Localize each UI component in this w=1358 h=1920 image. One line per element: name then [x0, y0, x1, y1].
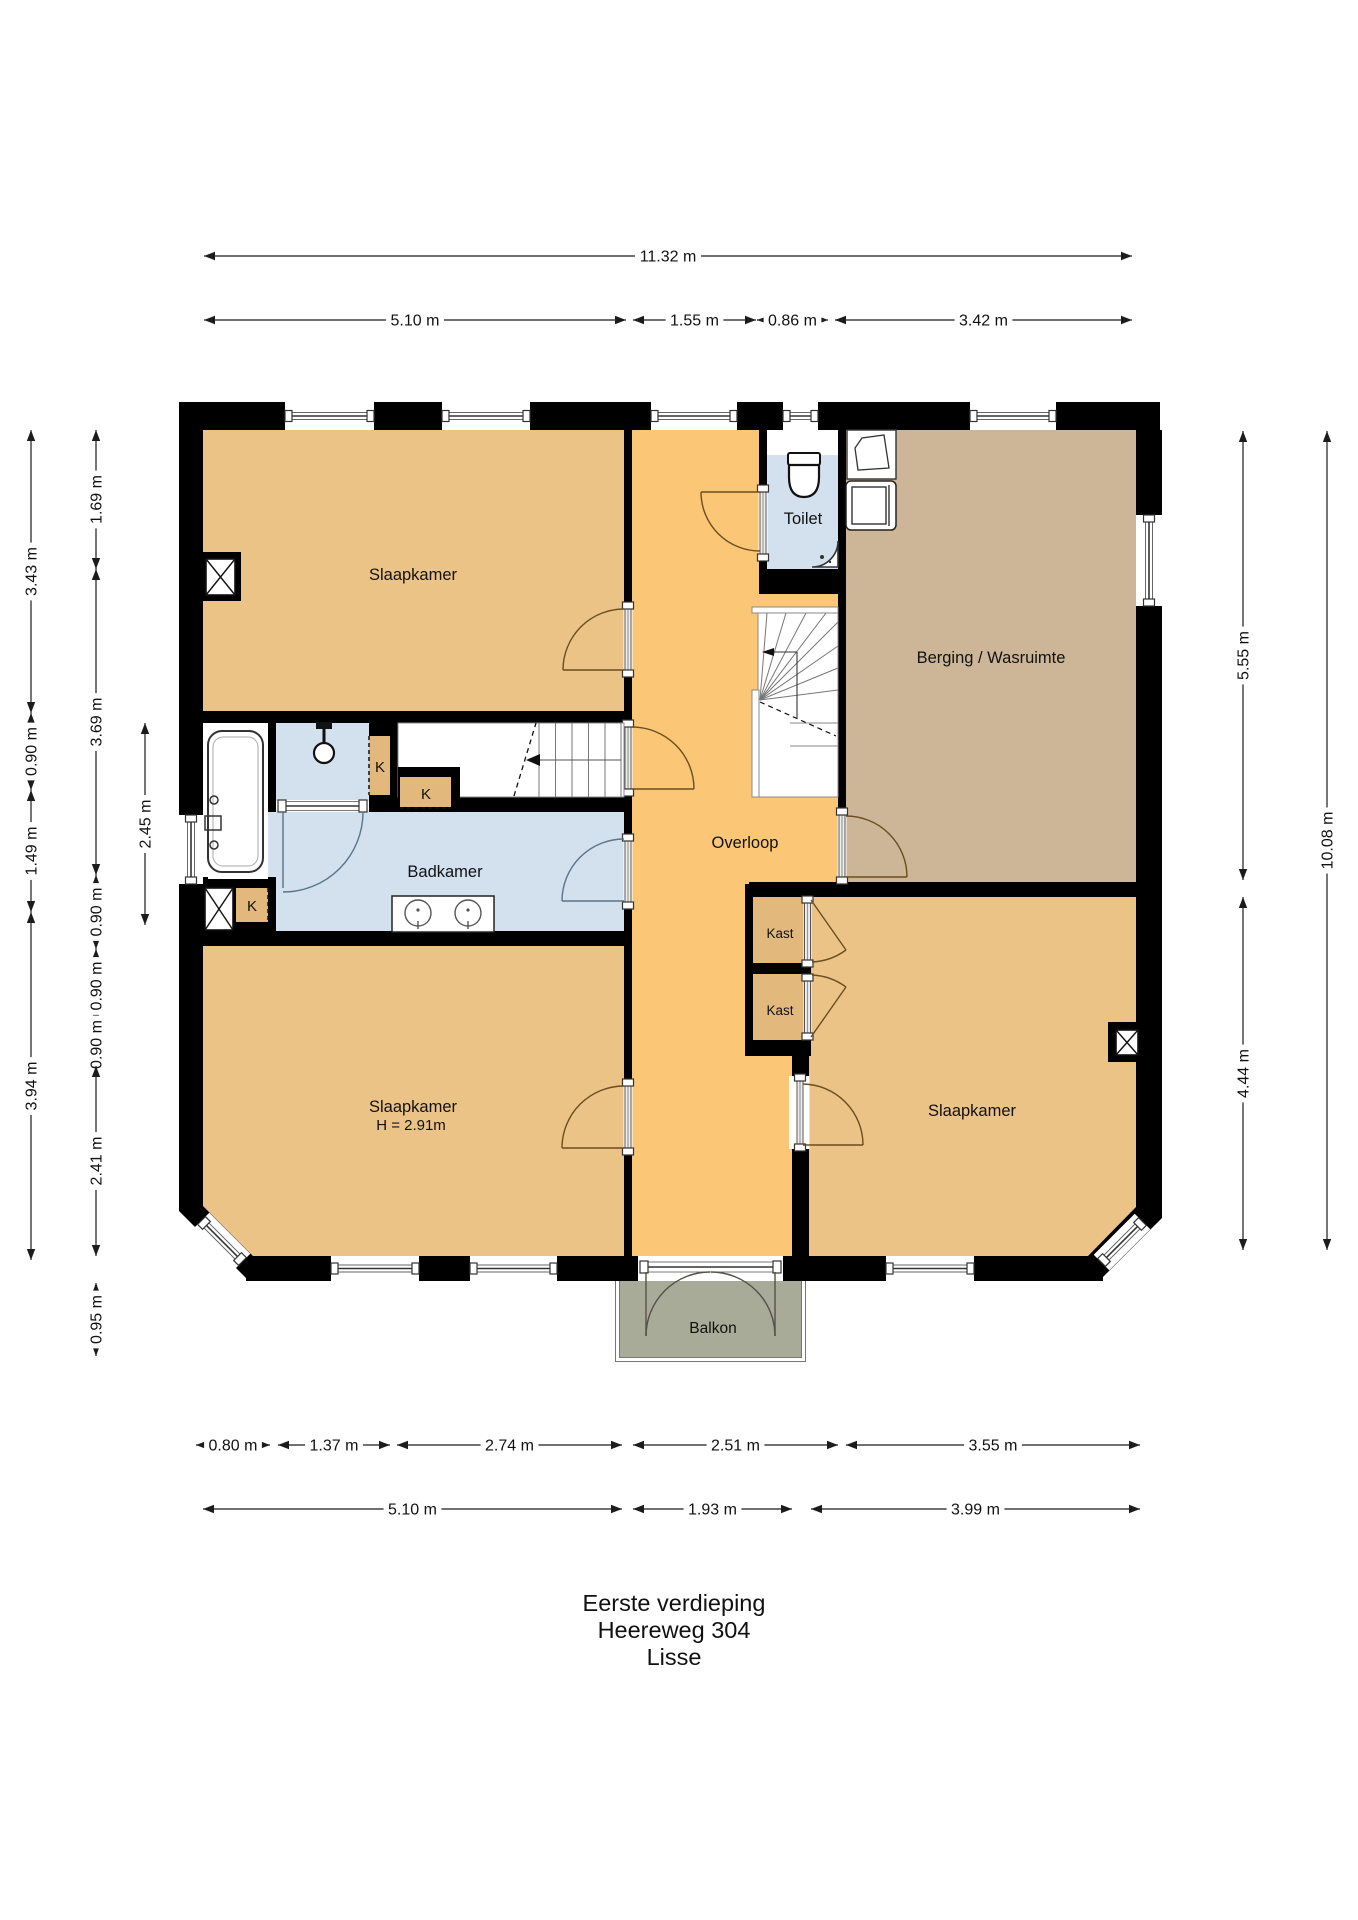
svg-text:5.10 m: 5.10 m — [391, 313, 440, 330]
svg-text:1.37 m: 1.37 m — [310, 1438, 359, 1455]
svg-text:0.80 m: 0.80 m — [209, 1438, 258, 1455]
svg-text:0.90 m: 0.90 m — [24, 727, 41, 776]
svg-text:Lisse: Lisse — [647, 1644, 702, 1670]
svg-text:K: K — [375, 759, 385, 776]
svg-text:Slaapkamer: Slaapkamer — [369, 566, 458, 584]
svg-text:3.55 m: 3.55 m — [969, 1438, 1018, 1455]
svg-text:Kast: Kast — [766, 1003, 793, 1018]
svg-text:11.32 m: 11.32 m — [640, 249, 697, 266]
svg-text:0.90 m: 0.90 m — [89, 962, 106, 1011]
svg-text:1.49 m: 1.49 m — [24, 827, 41, 876]
svg-text:0.95 m: 0.95 m — [89, 1295, 106, 1344]
svg-text:Badkamer: Badkamer — [407, 863, 483, 881]
svg-text:2.45 m: 2.45 m — [138, 800, 155, 849]
svg-text:Eerste verdieping: Eerste verdieping — [583, 1590, 766, 1616]
svg-text:1.69 m: 1.69 m — [89, 475, 106, 524]
svg-text:0.86 m: 0.86 m — [768, 313, 817, 330]
svg-text:2.51 m: 2.51 m — [711, 1438, 760, 1455]
svg-text:Heereweg 304: Heereweg 304 — [598, 1617, 751, 1643]
svg-text:Toilet: Toilet — [784, 510, 823, 528]
svg-text:Overloop: Overloop — [712, 834, 779, 852]
svg-text:2.41 m: 2.41 m — [89, 1137, 106, 1186]
svg-text:3.99 m: 3.99 m — [951, 1502, 1000, 1519]
svg-text:10.08 m: 10.08 m — [1320, 812, 1337, 870]
svg-text:Slaapkamer: Slaapkamer — [928, 1102, 1017, 1120]
svg-text:Slaapkamer: Slaapkamer — [369, 1098, 458, 1116]
svg-text:0.90 m: 0.90 m — [89, 1020, 106, 1069]
svg-text:3.69 m: 3.69 m — [89, 698, 106, 747]
svg-text:5.55 m: 5.55 m — [1236, 631, 1253, 680]
svg-text:3.43 m: 3.43 m — [24, 547, 41, 596]
svg-text:1.55 m: 1.55 m — [670, 313, 719, 330]
svg-text:3.42 m: 3.42 m — [959, 313, 1008, 330]
svg-text:3.94 m: 3.94 m — [24, 1062, 41, 1111]
svg-text:K: K — [247, 898, 257, 915]
svg-text:K: K — [421, 786, 431, 803]
svg-text:2.74 m: 2.74 m — [485, 1438, 534, 1455]
svg-text:Berging / Wasruimte: Berging / Wasruimte — [917, 649, 1066, 667]
svg-text:H = 2.91m: H = 2.91m — [376, 1117, 446, 1134]
svg-text:1.93 m: 1.93 m — [688, 1502, 737, 1519]
svg-text:Balkon: Balkon — [689, 1320, 736, 1337]
svg-text:5.10 m: 5.10 m — [388, 1502, 437, 1519]
svg-text:0.90 m: 0.90 m — [89, 888, 106, 937]
svg-text:4.44 m: 4.44 m — [1236, 1049, 1253, 1098]
svg-text:Kast: Kast — [766, 926, 793, 941]
